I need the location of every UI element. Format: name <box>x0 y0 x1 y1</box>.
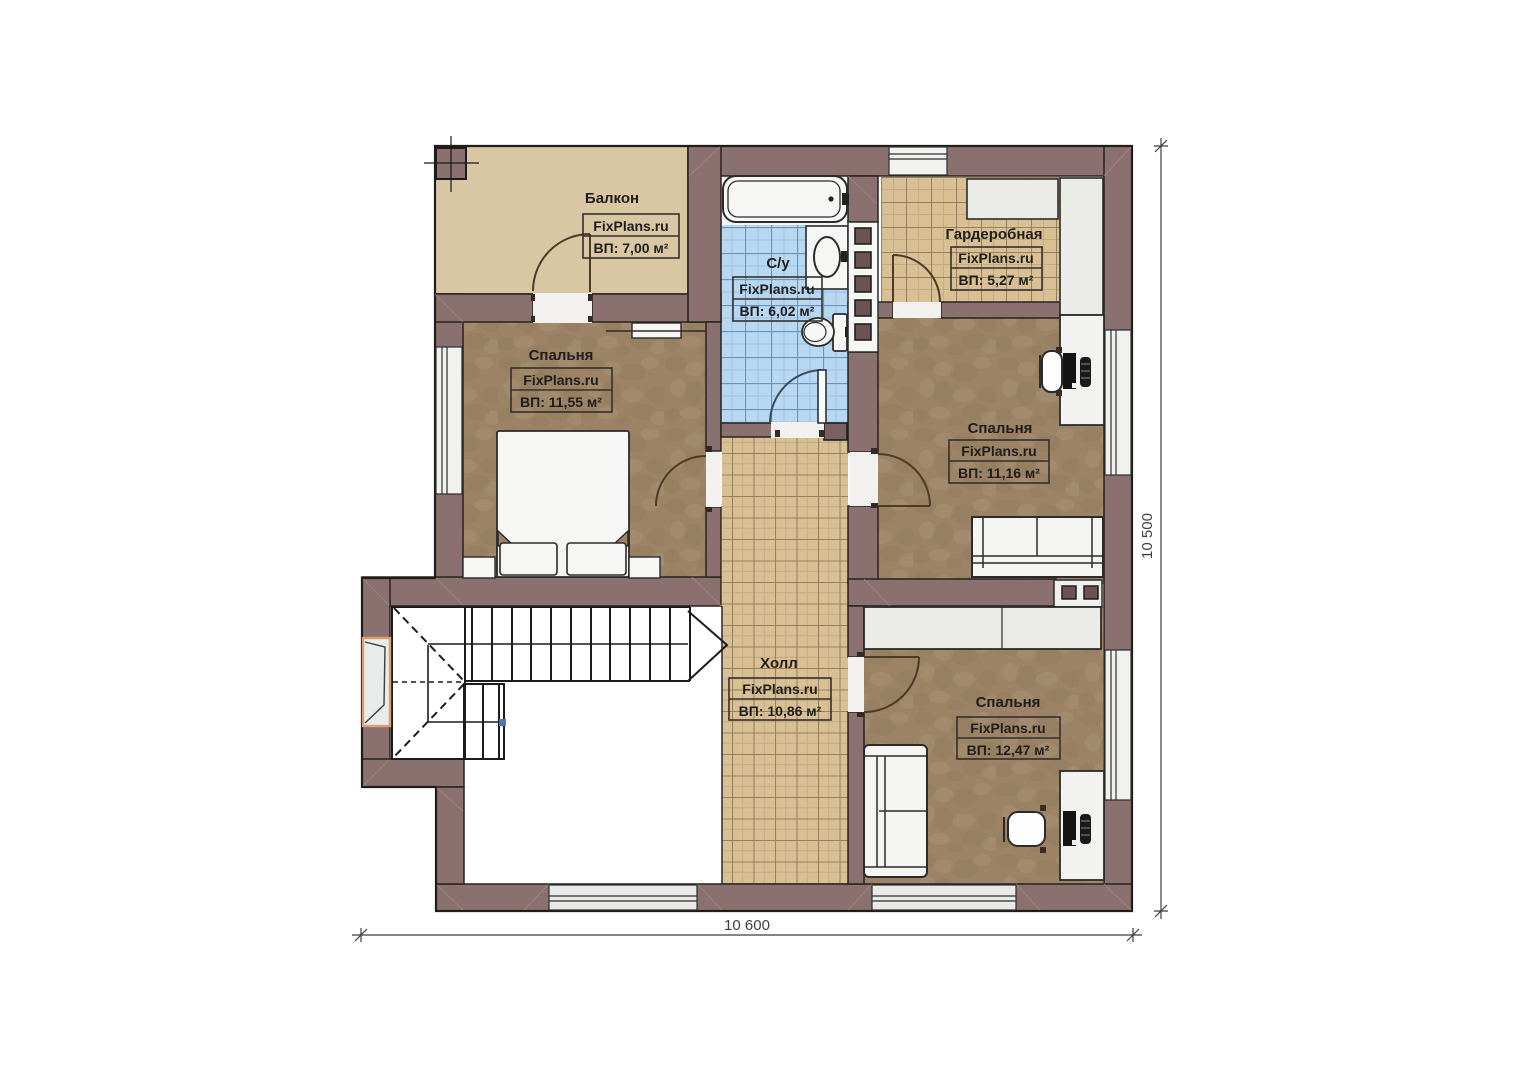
svg-text:Спальня: Спальня <box>968 420 1033 437</box>
svg-text:FixPlans.ru: FixPlans.ru <box>970 720 1045 736</box>
svg-text:10 500: 10 500 <box>1139 513 1156 559</box>
svg-text:ВП: 12,47 м²: ВП: 12,47 м² <box>967 742 1050 758</box>
svg-text:Спальня: Спальня <box>529 347 594 364</box>
svg-text:Холл: Холл <box>760 655 798 672</box>
svg-text:С/у: С/у <box>766 255 790 272</box>
svg-text:10 600: 10 600 <box>724 917 770 934</box>
svg-text:FixPlans.ru: FixPlans.ru <box>523 372 598 388</box>
svg-text:Балкон: Балкон <box>585 190 639 207</box>
svg-text:ВП: 11,16 м²: ВП: 11,16 м² <box>958 465 1040 481</box>
svg-text:ВП: 10,86 м²: ВП: 10,86 м² <box>739 703 822 719</box>
svg-text:FixPlans.ru: FixPlans.ru <box>739 281 814 297</box>
svg-text:ВП: 11,55 м²: ВП: 11,55 м² <box>520 394 602 410</box>
svg-text:ВП: 5,27 м²: ВП: 5,27 м² <box>959 272 1034 288</box>
svg-text:Гардеробная: Гардеробная <box>945 226 1042 243</box>
svg-text:FixPlans.ru: FixPlans.ru <box>742 681 817 697</box>
svg-text:FixPlans.ru: FixPlans.ru <box>958 250 1033 266</box>
svg-text:ВП: 7,00 м²: ВП: 7,00 м² <box>594 240 669 256</box>
svg-text:ВП: 6,02 м²: ВП: 6,02 м² <box>740 303 815 319</box>
svg-text:Спальня: Спальня <box>976 694 1041 711</box>
svg-text:FixPlans.ru: FixPlans.ru <box>593 218 668 234</box>
svg-text:FixPlans.ru: FixPlans.ru <box>961 443 1036 459</box>
